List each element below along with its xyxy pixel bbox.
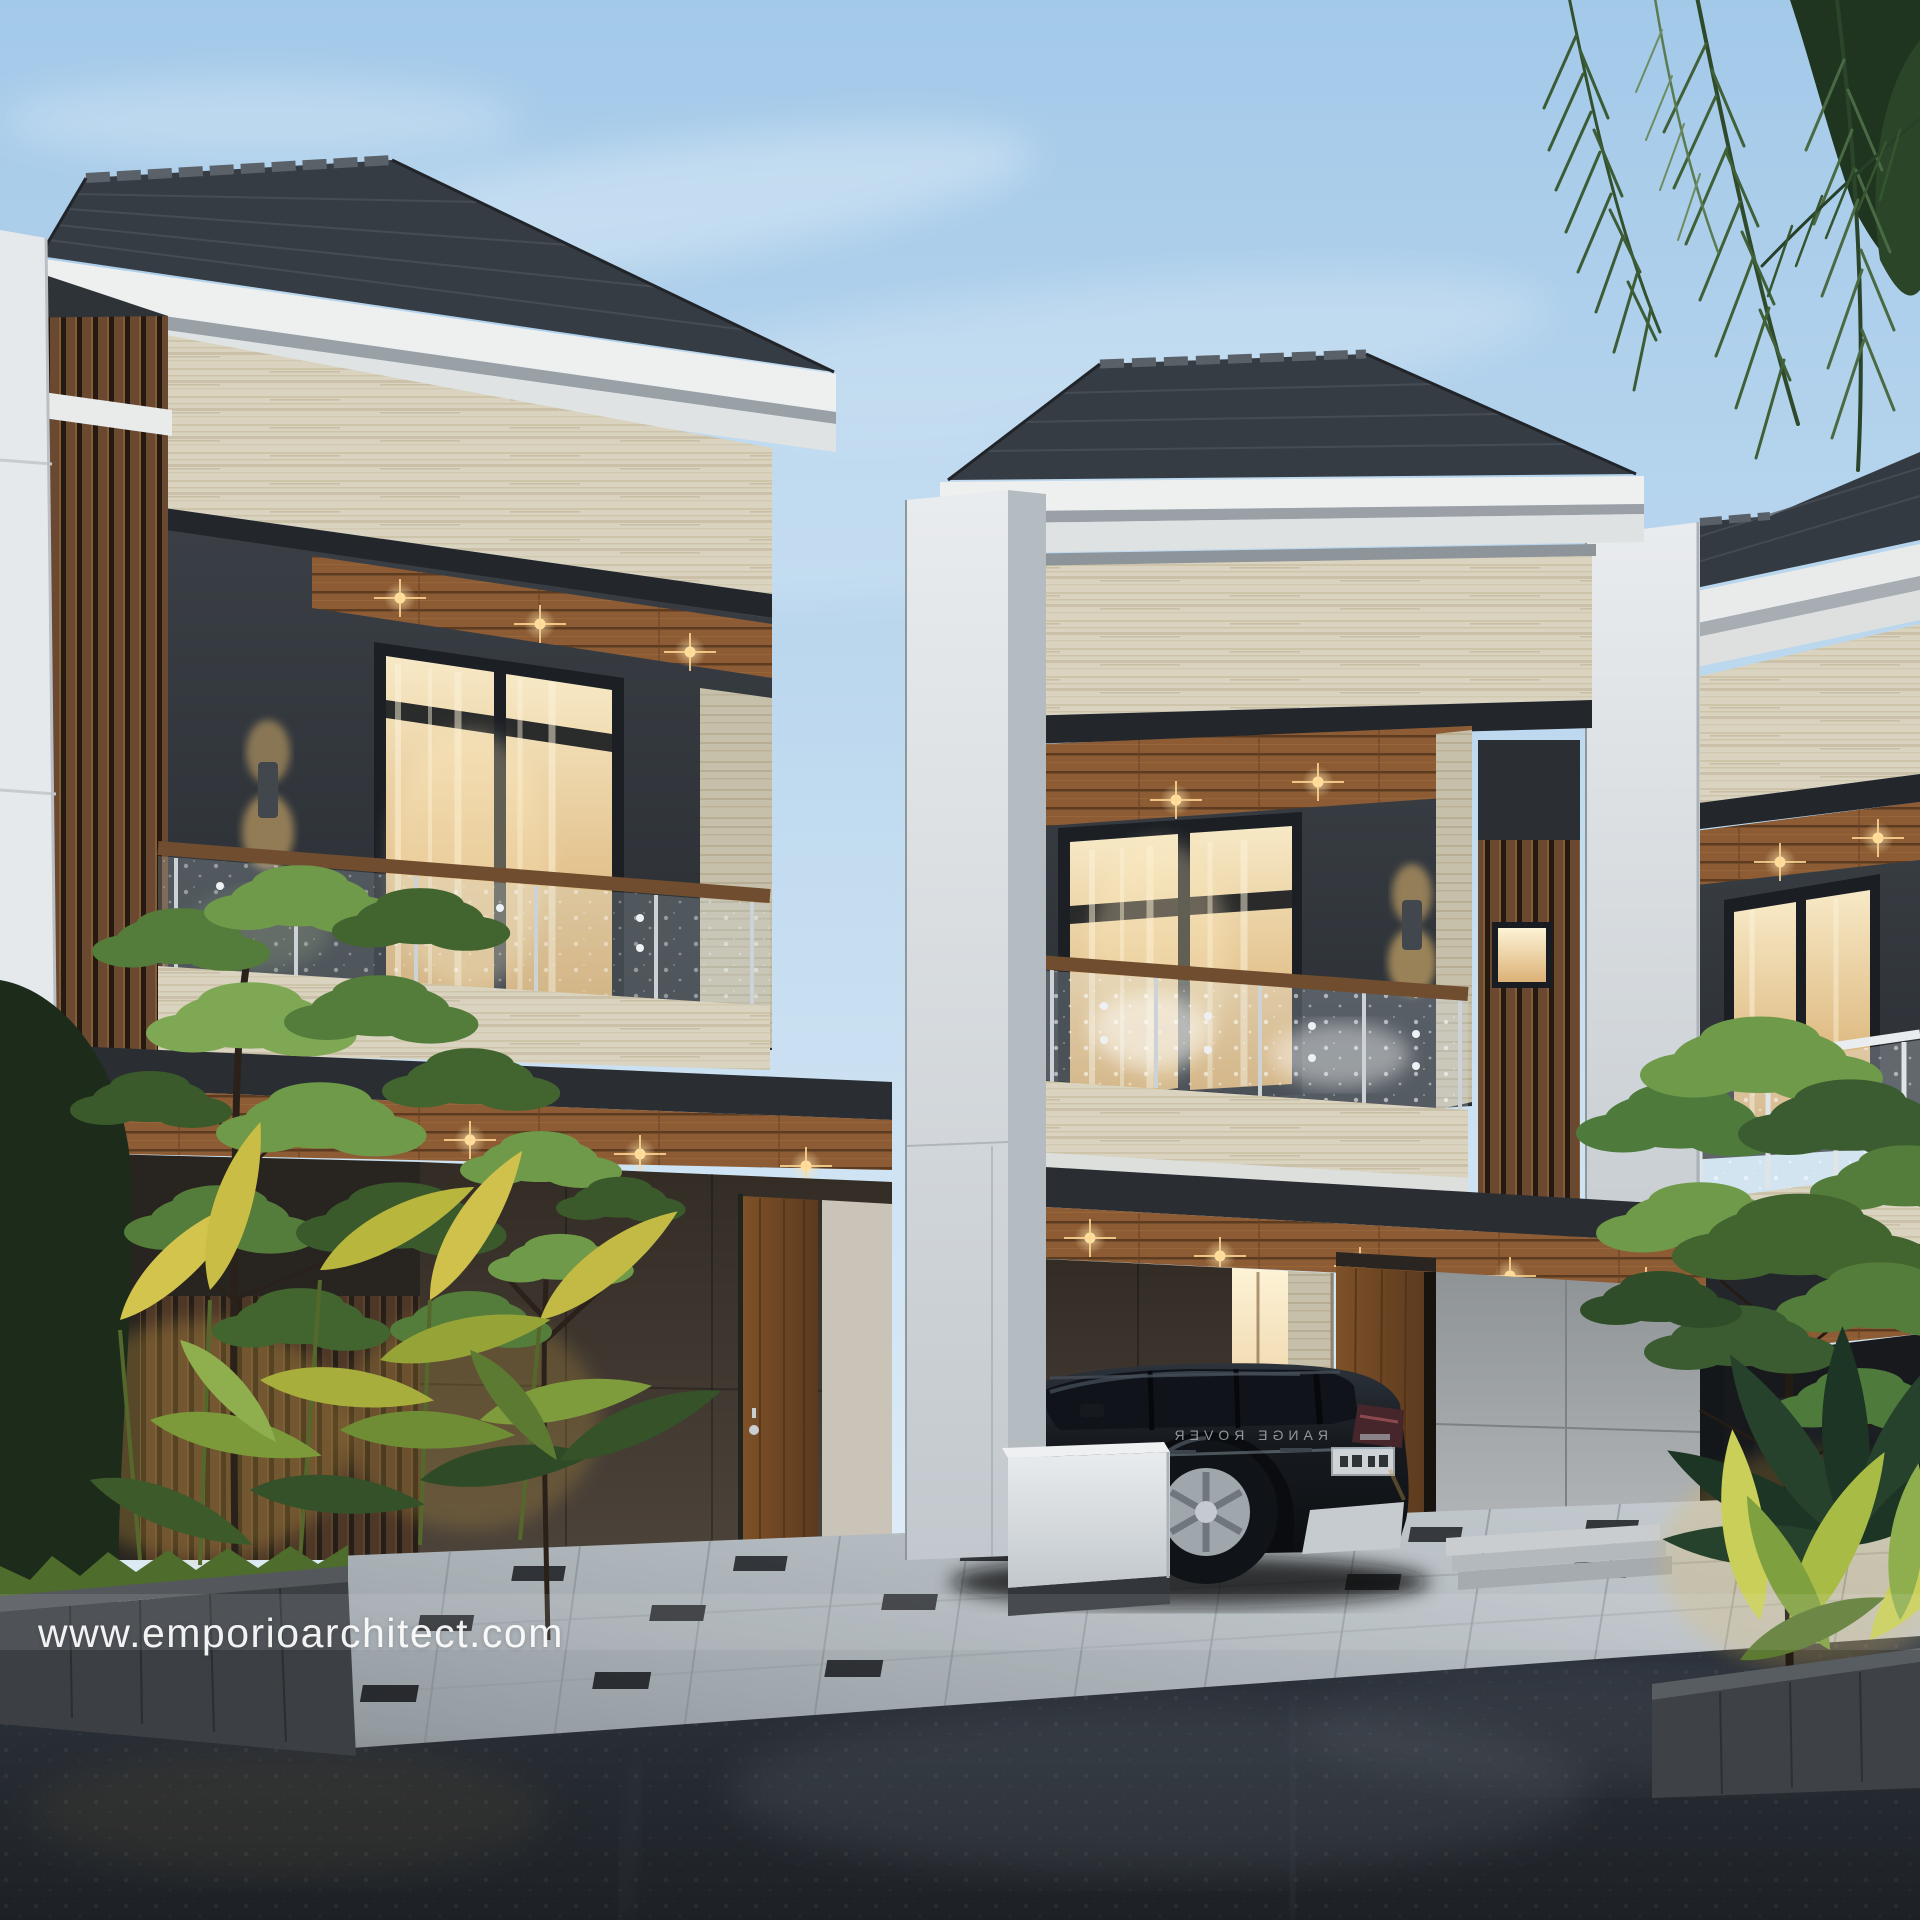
tailgate-badge: RANGE ROVER bbox=[1170, 1427, 1328, 1443]
entry-door bbox=[742, 1196, 818, 1556]
slat-strip bbox=[1478, 840, 1580, 1252]
front-low-wall bbox=[1002, 1442, 1170, 1616]
party-wall-1-2 bbox=[906, 490, 1046, 1560]
architectural-render: RANGE ROVER bbox=[0, 0, 1920, 1920]
watermark-text: www.emporioarchitect.com bbox=[38, 1610, 564, 1657]
travertine-band bbox=[1018, 556, 1592, 716]
tail-light bbox=[1352, 1404, 1404, 1448]
lit-window bbox=[1498, 928, 1546, 982]
skid-plate bbox=[1302, 1502, 1404, 1554]
